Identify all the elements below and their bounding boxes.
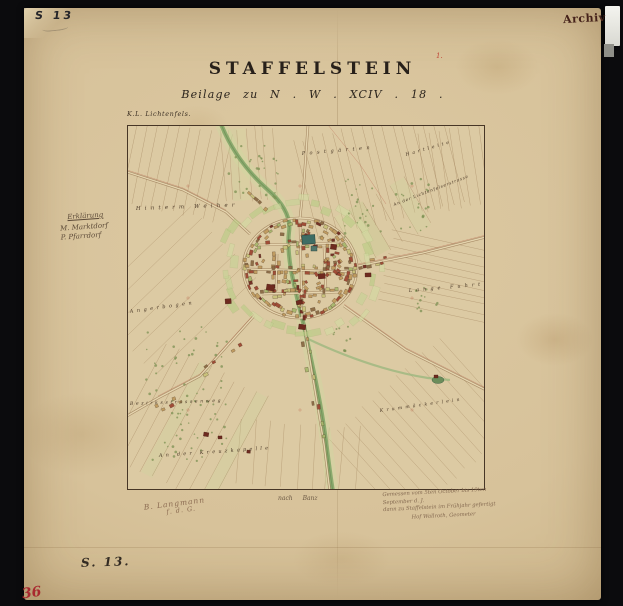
map-label-postgaerten: Postgärten — [301, 145, 375, 157]
source-note: K.L. Lichtenfels. — [127, 110, 191, 118]
surveyor-inscription: Gemessen vom 5ten October bis 19ten Sept… — [382, 486, 503, 523]
paper-tab — [605, 6, 620, 46]
map-label-bezirksstrassenweg: Bezirksstrassenweg — [129, 398, 223, 407]
legend-title: Erklärung — [67, 210, 108, 222]
red-annotation: 1. — [436, 52, 443, 60]
sheet-number: S. 13. — [81, 554, 131, 570]
map-subtitle: Beilage zu N . W . XCIV . 18 . — [24, 88, 601, 101]
town-map: Hinterm Weiher Postgärten Hartleite An d… — [127, 125, 485, 490]
town-map-drawing: Hinterm Weiher Postgärten Hartleite An d… — [128, 126, 484, 489]
map-label-krummaeckerlein: Krummäckerlein — [378, 396, 463, 414]
map-title: STAFFELSTEIN — [24, 59, 601, 79]
map-label-hartleite: Hartleite — [404, 139, 453, 158]
page-number: 36 — [21, 584, 43, 603]
legend: Erklärung M. Marktdorf P. Pfarrdorf — [59, 210, 109, 242]
paper-tab-shadow — [604, 44, 614, 57]
archiv-stamp: Archiv — [563, 11, 606, 26]
corner-stamp: S 13 — [34, 9, 75, 22]
fold-line-horizontal — [24, 547, 601, 548]
map-label-kreuzkapelle: An der Kreuzkapelle — [158, 445, 272, 459]
below-map-note: nach Banz — [278, 495, 318, 502]
